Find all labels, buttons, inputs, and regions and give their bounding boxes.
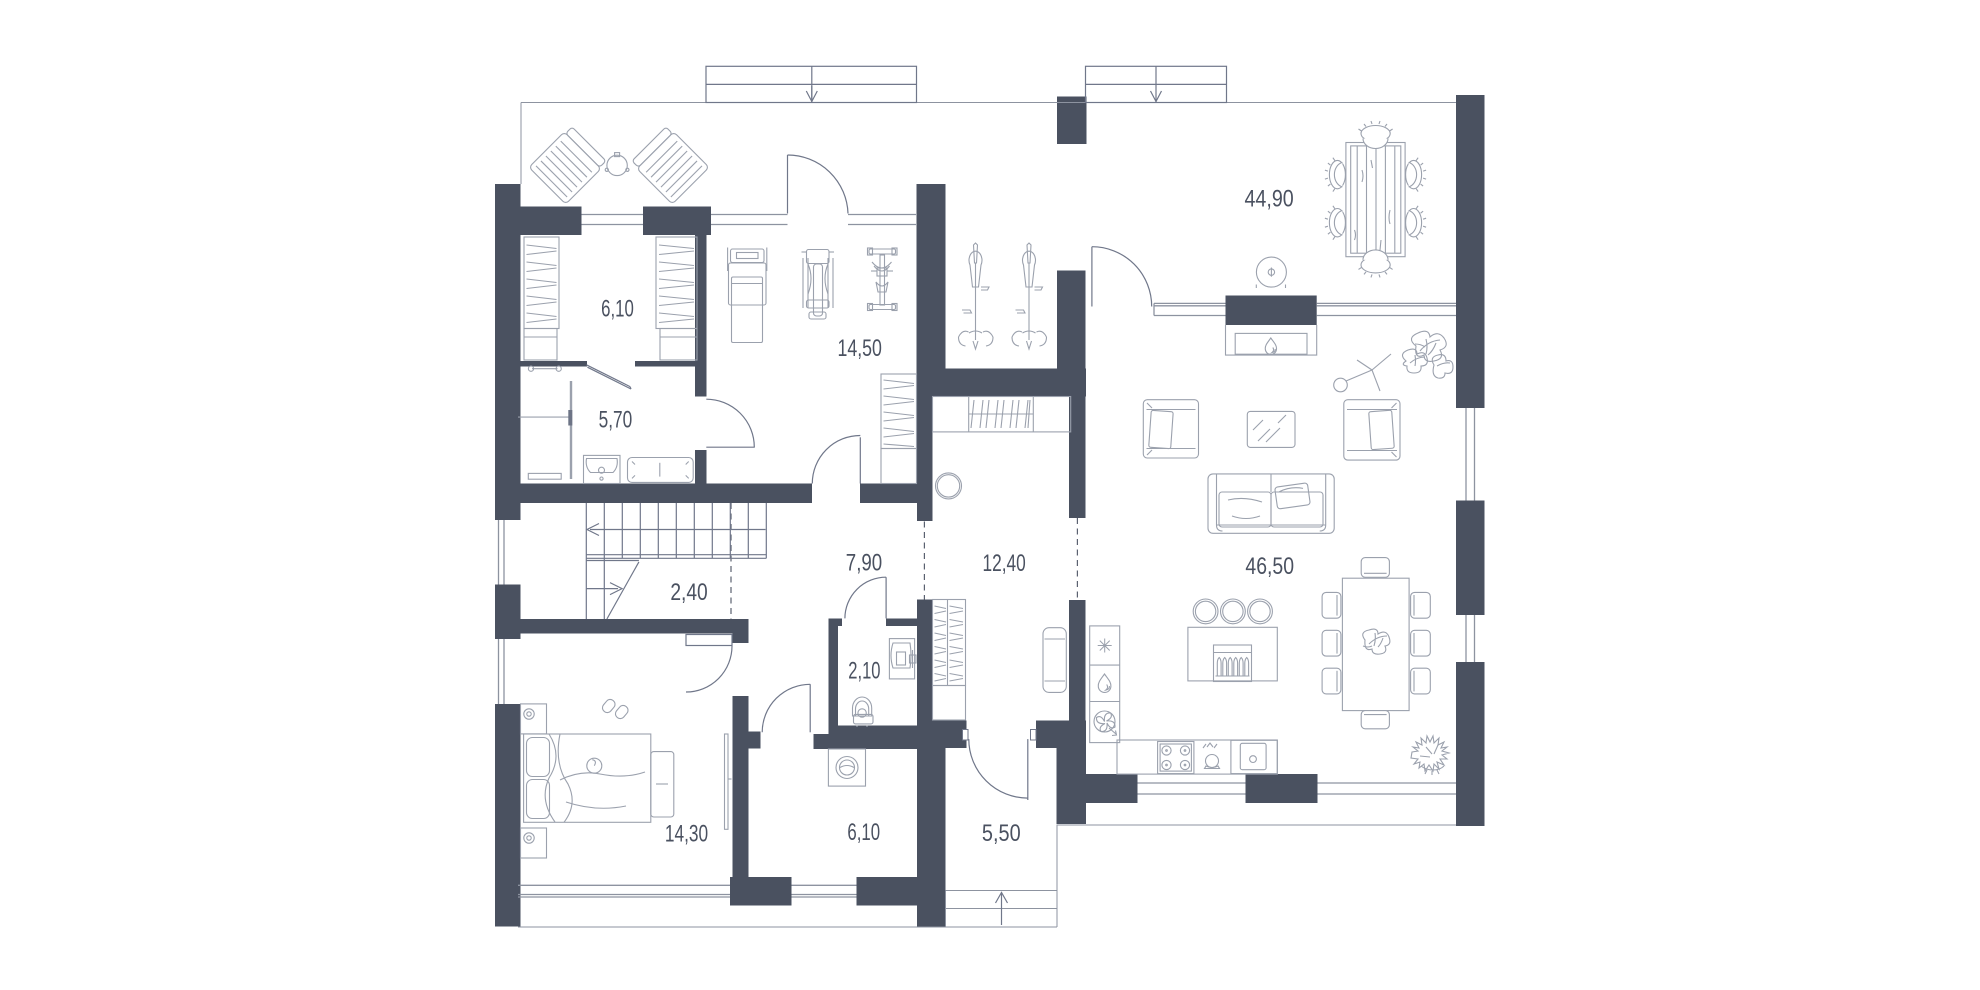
svg-text:46,50: 46,50: [1245, 552, 1294, 579]
svg-text:14,30: 14,30: [665, 821, 708, 847]
svg-text:44,90: 44,90: [1244, 185, 1293, 212]
svg-text:5,70: 5,70: [599, 407, 633, 433]
svg-text:6,10: 6,10: [847, 819, 880, 846]
svg-text:2,10: 2,10: [848, 658, 880, 685]
svg-text:2,40: 2,40: [670, 578, 707, 606]
svg-text:6,10: 6,10: [601, 296, 634, 323]
svg-text:5,50: 5,50: [982, 819, 1021, 846]
svg-text:7,90: 7,90: [846, 549, 882, 576]
svg-text:12,40: 12,40: [982, 550, 1025, 576]
svg-text:14,50: 14,50: [837, 336, 881, 362]
